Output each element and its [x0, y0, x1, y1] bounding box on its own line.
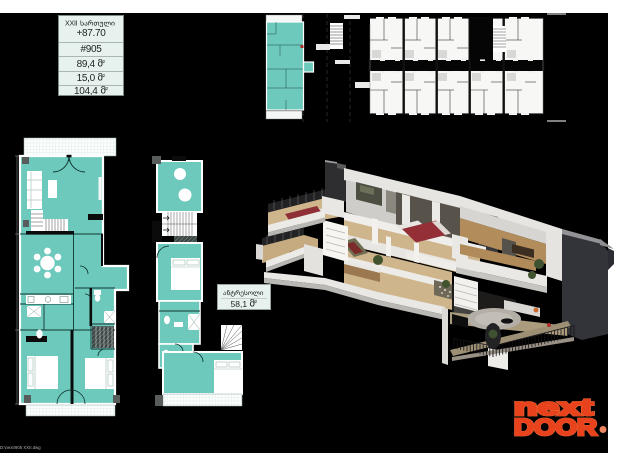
svg-text:2: 2 [103, 73, 105, 78]
svg-text:DOOR: DOOR [514, 414, 597, 440]
svg-text:2: 2 [103, 59, 105, 64]
svg-text:2: 2 [106, 86, 108, 91]
